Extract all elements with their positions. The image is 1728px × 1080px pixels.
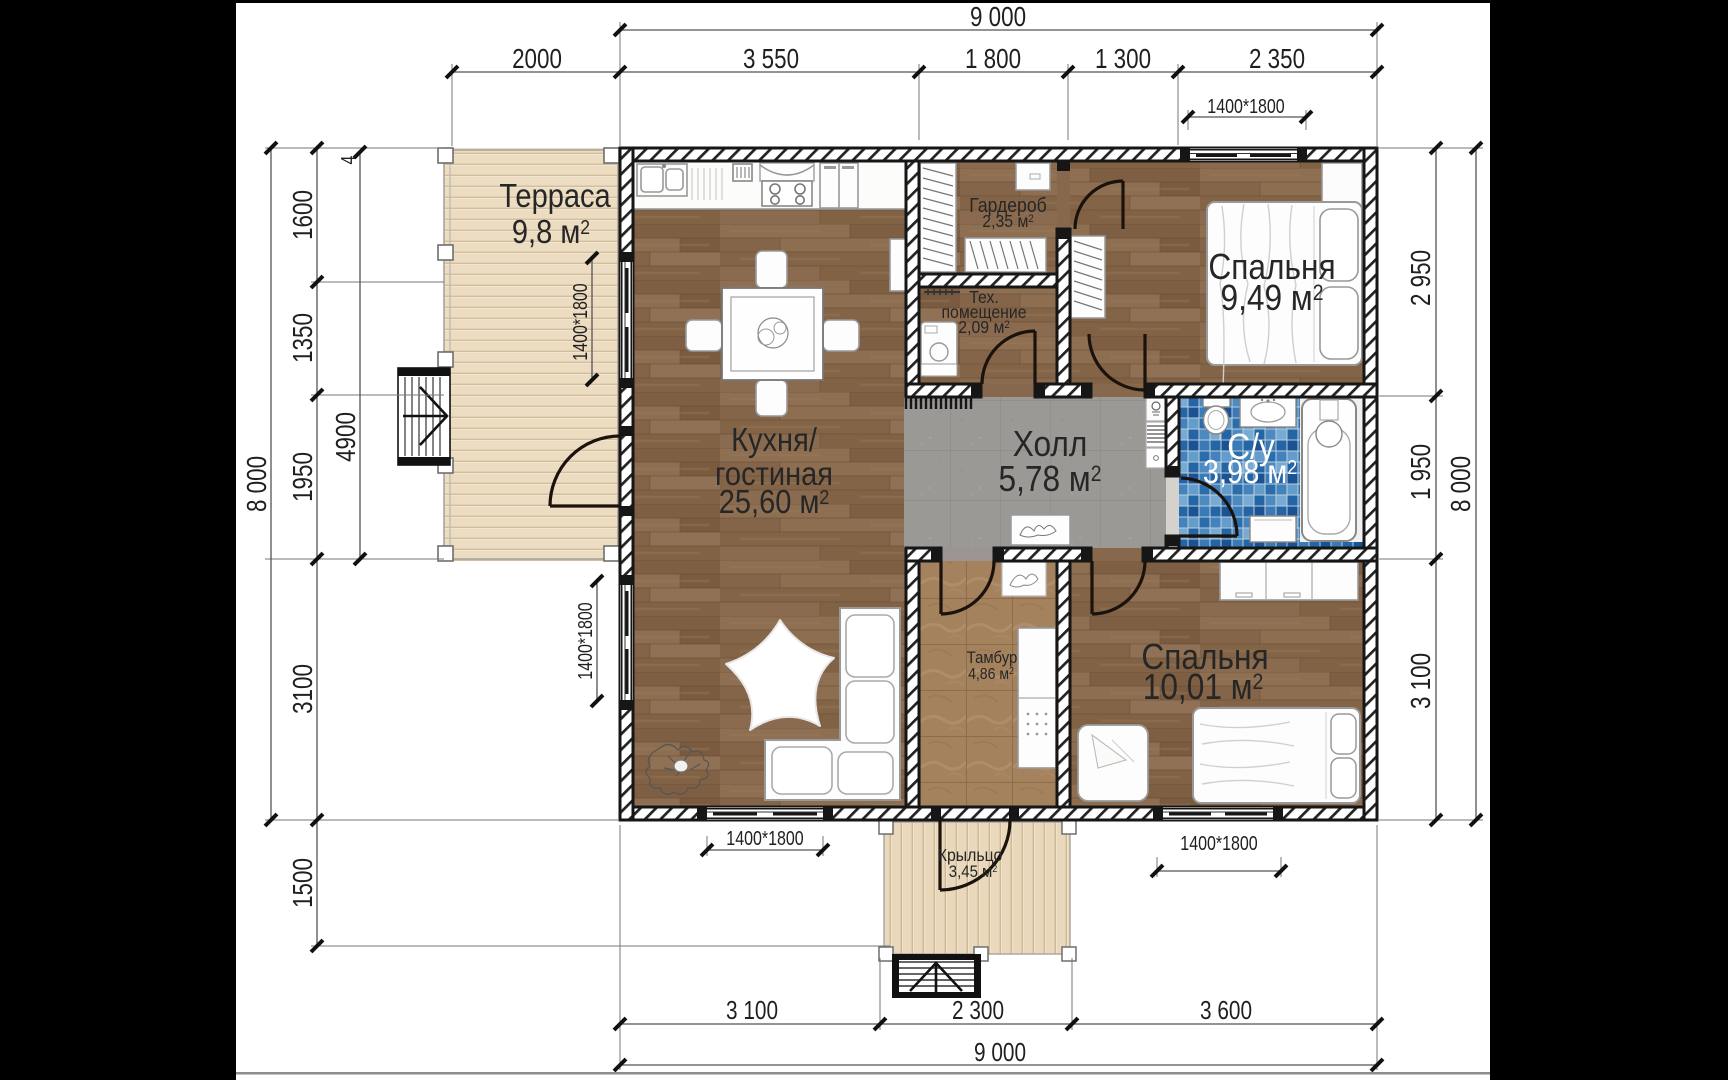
svg-text:1 950: 1 950 bbox=[1406, 444, 1437, 500]
svg-text:4: 4 bbox=[337, 156, 359, 165]
svg-text:2 950: 2 950 bbox=[1406, 250, 1437, 306]
svg-text:1400*1800: 1400*1800 bbox=[569, 283, 591, 360]
svg-text:1400*1800: 1400*1800 bbox=[1180, 832, 1257, 854]
svg-text:Кухня/: Кухня/ bbox=[731, 421, 817, 458]
svg-text:1400*1800: 1400*1800 bbox=[726, 827, 803, 849]
svg-text:1500: 1500 bbox=[288, 858, 319, 908]
svg-text:9,8 м2: 9,8 м2 bbox=[512, 213, 590, 250]
svg-text:9,49 м2: 9,49 м2 bbox=[1221, 278, 1324, 318]
svg-text:3 600: 3 600 bbox=[1200, 996, 1252, 1025]
svg-text:2000: 2000 bbox=[512, 44, 562, 75]
svg-text:1600: 1600 bbox=[288, 190, 319, 240]
svg-text:1 300: 1 300 bbox=[1095, 44, 1151, 75]
svg-text:4900: 4900 bbox=[331, 412, 362, 462]
svg-text:2 350: 2 350 bbox=[1249, 44, 1305, 75]
svg-text:3 100: 3 100 bbox=[1406, 653, 1437, 709]
svg-text:1350: 1350 bbox=[288, 313, 319, 363]
svg-text:9 000: 9 000 bbox=[970, 2, 1026, 33]
svg-text:9 000: 9 000 bbox=[974, 1038, 1026, 1067]
svg-text:1400*1800: 1400*1800 bbox=[574, 602, 596, 679]
svg-text:10,01 м2: 10,01 м2 bbox=[1143, 667, 1264, 707]
svg-text:1 800: 1 800 bbox=[965, 44, 1021, 75]
svg-text:2,35 м2: 2,35 м2 bbox=[982, 211, 1034, 231]
svg-text:3 100: 3 100 bbox=[726, 996, 778, 1025]
svg-text:3,45 м2: 3,45 м2 bbox=[949, 862, 997, 881]
svg-text:5,78 м2: 5,78 м2 bbox=[999, 459, 1102, 499]
svg-text:1400*1800: 1400*1800 bbox=[1207, 95, 1284, 117]
svg-text:8 000: 8 000 bbox=[1446, 456, 1477, 512]
svg-text:2 300: 2 300 bbox=[952, 996, 1004, 1025]
svg-text:4,86 м2: 4,86 м2 bbox=[968, 664, 1014, 683]
svg-text:25,60 м2: 25,60 м2 bbox=[719, 483, 829, 520]
svg-text:2,09 м2: 2,09 м2 bbox=[958, 317, 1010, 337]
svg-text:Терраса: Терраса bbox=[499, 177, 611, 214]
svg-text:1950: 1950 bbox=[288, 452, 319, 502]
svg-text:8 000: 8 000 bbox=[242, 456, 273, 512]
svg-text:3100: 3100 bbox=[288, 664, 319, 714]
svg-text:3,98 м2: 3,98 м2 bbox=[1203, 453, 1297, 490]
svg-text:3 550: 3 550 bbox=[743, 44, 799, 75]
